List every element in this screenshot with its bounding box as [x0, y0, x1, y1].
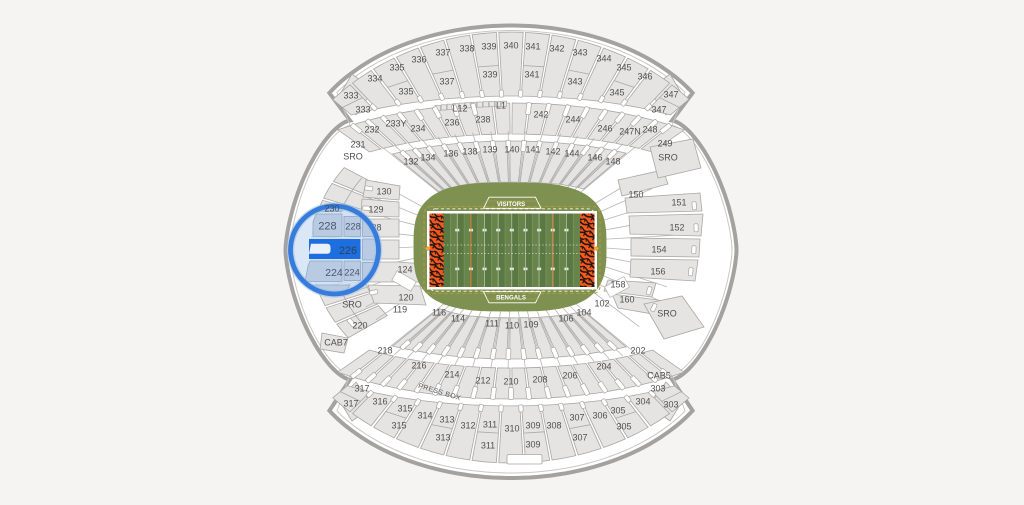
svg-text:345: 345: [616, 62, 631, 72]
svg-text:L1: L1: [496, 100, 506, 110]
svg-text:134: 134: [420, 152, 435, 162]
svg-text:109: 109: [523, 319, 538, 329]
svg-text:151: 151: [671, 197, 686, 207]
svg-text:346: 346: [637, 71, 652, 81]
svg-text:160: 160: [619, 294, 634, 304]
svg-text:SRO: SRO: [657, 308, 677, 318]
svg-text:VISITORS: VISITORS: [497, 201, 525, 208]
svg-text:337: 337: [435, 47, 450, 57]
svg-text:341: 341: [524, 69, 539, 79]
svg-text:336: 336: [411, 54, 426, 64]
svg-text:307: 307: [572, 432, 587, 442]
svg-text:130: 130: [376, 186, 391, 196]
svg-text:231: 231: [350, 139, 365, 149]
svg-text:343: 343: [567, 76, 582, 86]
svg-text:304: 304: [635, 396, 650, 406]
svg-text:140: 140: [504, 144, 519, 154]
svg-text:210: 210: [503, 376, 518, 386]
svg-text:146: 146: [587, 152, 602, 162]
svg-text:CAB5: CAB5: [647, 370, 671, 380]
svg-text:129: 129: [368, 204, 383, 214]
svg-text:L12: L12: [452, 103, 467, 113]
svg-text:148: 148: [605, 156, 620, 166]
svg-text:150: 150: [628, 189, 643, 199]
svg-text:339: 339: [482, 69, 497, 79]
svg-text:220: 220: [352, 320, 367, 330]
svg-text:106: 106: [558, 313, 573, 323]
svg-text:335: 335: [389, 62, 404, 72]
svg-text:305: 305: [610, 405, 625, 415]
svg-text:236: 236: [444, 117, 459, 127]
svg-text:132: 132: [403, 156, 418, 166]
svg-text:246: 246: [597, 123, 612, 133]
svg-text:311: 311: [481, 440, 495, 450]
svg-text:110: 110: [505, 320, 519, 330]
svg-text:156: 156: [650, 266, 665, 276]
svg-text:116: 116: [432, 307, 446, 317]
svg-text:SRO: SRO: [343, 151, 363, 161]
svg-text:238: 238: [475, 114, 490, 124]
svg-text:347: 347: [663, 89, 678, 99]
svg-text:224: 224: [344, 267, 360, 277]
svg-text:317: 317: [354, 383, 369, 393]
svg-text:317: 317: [343, 398, 358, 408]
svg-text:141: 141: [525, 144, 540, 154]
svg-text:204: 204: [596, 361, 611, 371]
svg-text:124: 124: [397, 264, 412, 274]
svg-text:333: 333: [355, 104, 370, 114]
svg-text:341: 341: [525, 41, 540, 51]
svg-text:152: 152: [669, 222, 684, 232]
svg-text:SRO: SRO: [658, 152, 678, 162]
svg-text:343: 343: [572, 47, 587, 57]
svg-text:315: 315: [397, 403, 412, 413]
svg-text:218: 218: [377, 345, 392, 355]
svg-text:138: 138: [462, 146, 477, 156]
svg-text:303: 303: [650, 383, 665, 393]
svg-text:316: 316: [372, 396, 387, 406]
svg-text:337: 337: [439, 76, 454, 86]
svg-text:120: 120: [398, 292, 413, 302]
svg-text:136: 136: [443, 148, 458, 158]
svg-text:334: 334: [367, 73, 382, 83]
svg-text:308: 308: [546, 420, 561, 430]
svg-text:247N: 247N: [619, 126, 641, 136]
svg-text:310: 310: [504, 423, 519, 433]
svg-text:312: 312: [460, 420, 475, 430]
svg-text:142: 142: [545, 146, 560, 156]
svg-text:154: 154: [651, 244, 666, 254]
svg-text:234: 234: [410, 123, 425, 133]
svg-text:CAB7: CAB7: [324, 337, 348, 347]
svg-text:311: 311: [483, 419, 497, 429]
svg-text:342: 342: [549, 43, 564, 53]
svg-text:212: 212: [475, 375, 490, 385]
svg-text:305: 305: [616, 421, 631, 431]
svg-text:232: 232: [364, 124, 379, 134]
svg-text:313: 313: [439, 414, 454, 424]
svg-text:340: 340: [503, 40, 518, 50]
svg-text:228: 228: [318, 221, 336, 233]
svg-text:139: 139: [482, 144, 497, 154]
svg-text:244: 244: [565, 114, 580, 124]
svg-text:158: 158: [610, 279, 625, 289]
svg-text:338: 338: [459, 43, 474, 53]
svg-text:303: 303: [663, 399, 678, 409]
svg-text:226: 226: [339, 245, 357, 257]
svg-text:224: 224: [325, 267, 343, 279]
svg-text:216: 216: [411, 360, 426, 370]
svg-text:228: 228: [345, 221, 361, 231]
svg-text:114: 114: [451, 313, 465, 323]
svg-text:335: 335: [398, 86, 413, 96]
svg-text:233Y: 233Y: [385, 118, 406, 128]
svg-text:306: 306: [592, 410, 607, 420]
svg-text:144: 144: [564, 148, 579, 158]
svg-text:104: 104: [576, 307, 591, 317]
svg-text:214: 214: [444, 369, 459, 379]
svg-text:344: 344: [596, 53, 611, 63]
svg-text:248: 248: [642, 124, 657, 134]
svg-text:315: 315: [391, 420, 406, 430]
svg-text:119: 119: [393, 304, 407, 314]
svg-text:309: 309: [525, 420, 540, 430]
svg-text:309: 309: [525, 439, 540, 449]
svg-text:230: 230: [324, 203, 339, 213]
svg-text:347: 347: [651, 104, 666, 114]
svg-text:333: 333: [343, 90, 358, 100]
svg-text:111: 111: [485, 318, 499, 328]
svg-text:249: 249: [657, 138, 672, 148]
svg-text:208: 208: [532, 374, 547, 384]
svg-text:339: 339: [481, 41, 496, 51]
svg-text:202: 202: [630, 345, 645, 355]
svg-text:314: 314: [417, 410, 432, 420]
svg-text:313: 313: [435, 432, 450, 442]
svg-text:SRO: SRO: [342, 299, 362, 309]
svg-text:102: 102: [594, 298, 609, 308]
svg-text:BENGALS: BENGALS: [496, 294, 526, 301]
svg-text:307: 307: [569, 412, 584, 422]
svg-text:206: 206: [562, 370, 577, 380]
svg-text:242: 242: [533, 109, 548, 119]
svg-text:345: 345: [609, 87, 624, 97]
